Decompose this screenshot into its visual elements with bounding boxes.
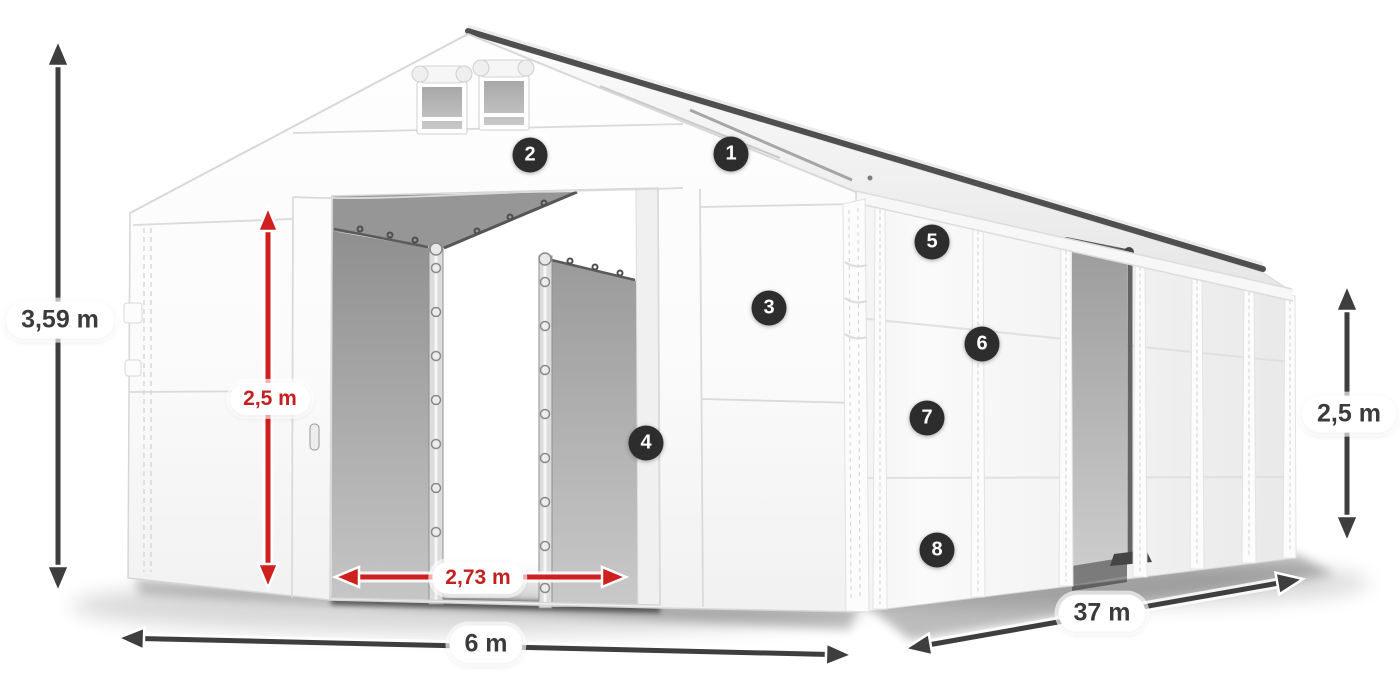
entrance-right-door-leaf (545, 258, 640, 607)
door-handle (310, 424, 319, 450)
feature-hotspot-6[interactable]: 6 (965, 327, 1000, 362)
total-height-label: 3,59 m (6, 302, 114, 339)
window-right (473, 60, 534, 130)
window-left (412, 66, 472, 134)
entrance-right-door-pole (539, 253, 552, 608)
front-width-label: 6 m (449, 626, 522, 663)
tent-illustration (0, 0, 1400, 700)
feature-hotspot-4[interactable]: 4 (629, 426, 664, 461)
feature-hotspot-1[interactable]: 1 (714, 137, 749, 172)
side-length-label: 37 m (1059, 595, 1146, 632)
feature-hotspot-5[interactable]: 5 (915, 225, 950, 260)
strap-buckle (124, 303, 142, 323)
feature-hotspot-2[interactable]: 2 (513, 138, 548, 173)
entrance-width-label: 2,73 m (432, 562, 523, 594)
entrance-height-label: 2,5 m (230, 383, 310, 415)
feature-hotspot-3[interactable]: 3 (752, 291, 787, 326)
tent-dimension-diagram: 3,59 m 2,5 m 2,73 m 6 m 37 m 2,5 m 1 2 3… (0, 0, 1400, 700)
front-entrance-interior (332, 188, 661, 608)
strap-buckle (125, 360, 141, 376)
entrance-left-door-leaf (332, 231, 433, 602)
feature-hotspot-8[interactable]: 8 (920, 533, 955, 568)
side-wall-height-label: 2,5 m (1302, 396, 1396, 433)
entrance-left-door-pole (429, 243, 443, 604)
feature-hotspot-7[interactable]: 7 (910, 401, 945, 436)
front-corner-strip (843, 199, 869, 612)
